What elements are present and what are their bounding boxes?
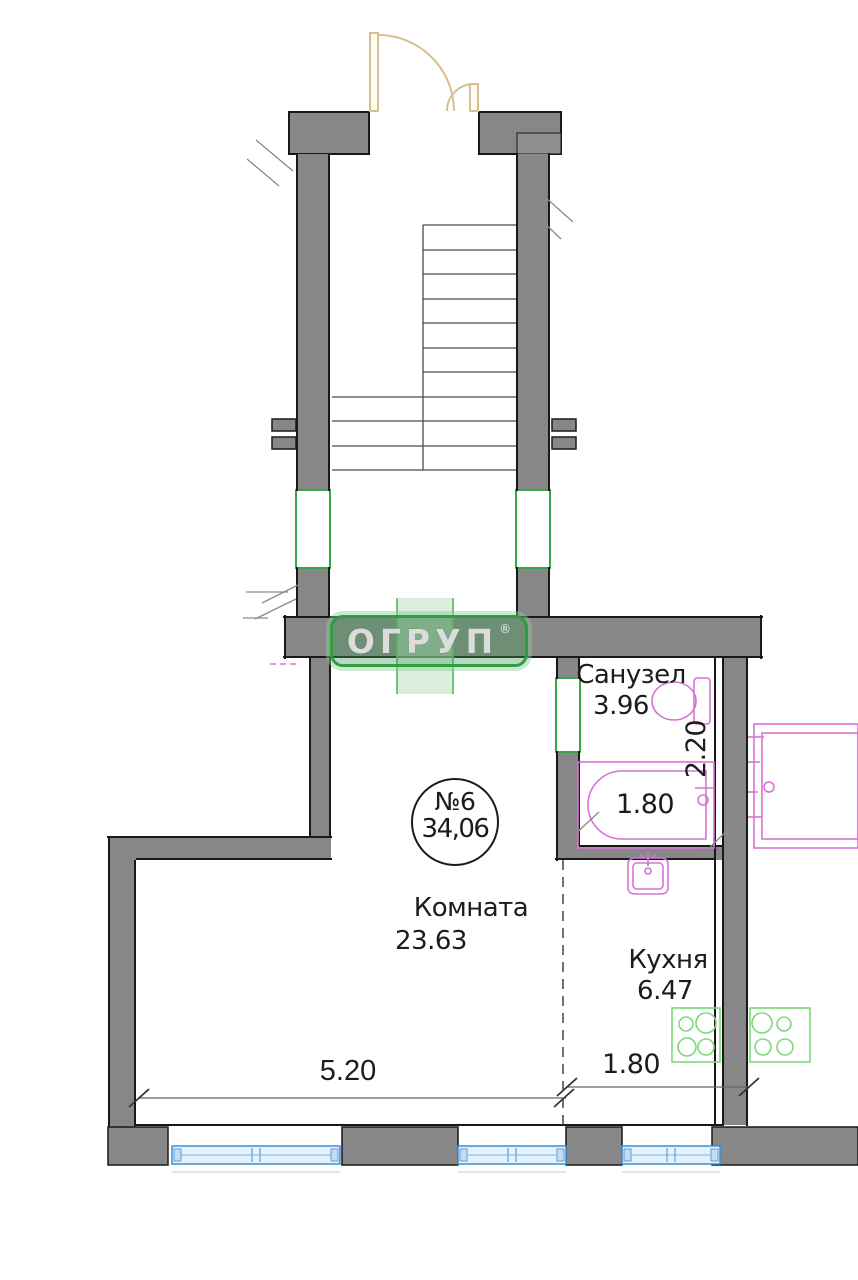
bathroom-label: Санузел [566, 660, 696, 690]
dimension-lines [129, 1078, 759, 1107]
street-window-living-1 [172, 1146, 340, 1172]
unit-number: №6 [413, 789, 497, 815]
entrance-door-swing [370, 33, 478, 111]
living-room-width-dim: 5.20 [288, 1055, 408, 1088]
unit-badge: №6 34,06 [411, 778, 499, 866]
bathroom-area: 3.96 [561, 691, 681, 721]
street-window-kitchen [622, 1146, 720, 1172]
kitchen-width-dim: 1.80 [571, 1049, 691, 1080]
unit-total-area: 34,06 [413, 815, 497, 843]
entrance-piers [289, 112, 561, 154]
stair-windows [296, 490, 550, 568]
kitchen-area: 6.47 [613, 976, 717, 1006]
street-window-living-2 [458, 1146, 566, 1172]
kitchen-sink-icon [628, 852, 668, 894]
stair-steps [332, 225, 516, 470]
bathroom-width-dim: 1.80 [585, 789, 705, 820]
living-room-label: Комната [396, 893, 546, 923]
floor-plan: ОГРУП® №6 34,06 Санузел 3.96 2.20 1.80 К… [0, 0, 858, 1280]
neighbor-bathtub-icon [748, 724, 858, 848]
kitchen-label: Кухня [613, 945, 723, 975]
neighbor-stove-icon [750, 1008, 810, 1062]
registered-trademark-icon: ® [499, 622, 511, 636]
logo-ogrup: ОГРУП® [330, 615, 528, 667]
logo-text: ОГРУП [347, 625, 498, 658]
living-room-area: 23.63 [371, 926, 491, 956]
bathroom-depth-dim: 2.20 [681, 706, 711, 792]
